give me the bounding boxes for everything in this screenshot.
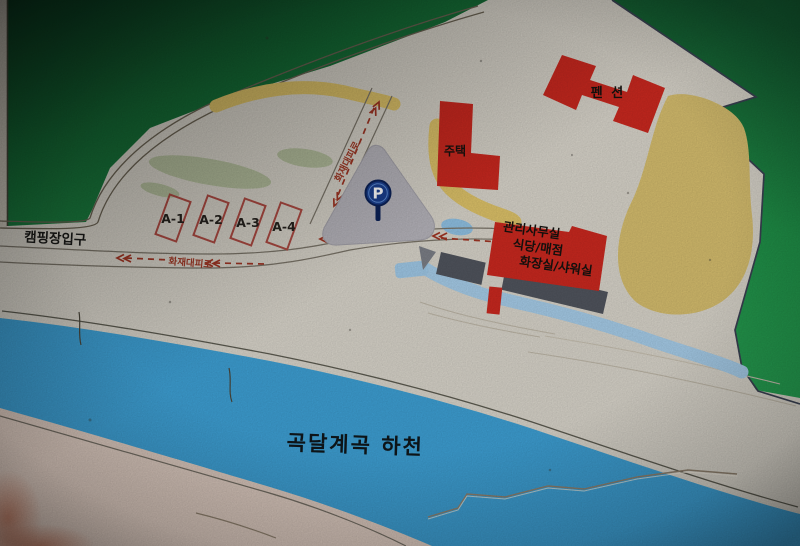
campground-map: 곡달계곡 하천 화재대피로 화재대피로 화재대피로 P — [0, 0, 800, 546]
campground-map-sign-photo: 곡달계곡 하천 화재대피로 화재대피로 화재대피로 P — [0, 0, 800, 546]
vignette — [0, 0, 800, 546]
